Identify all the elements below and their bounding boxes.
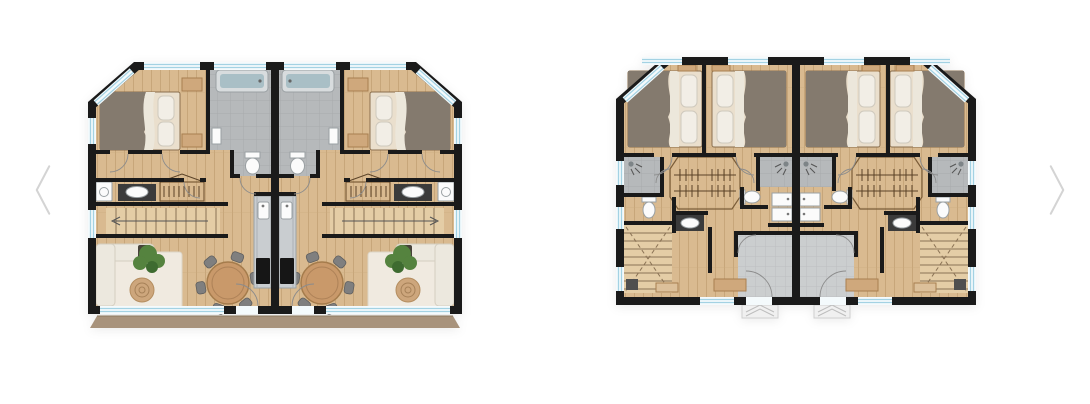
image-carousel: [0, 0, 1090, 404]
floor-plan-slide-1[interactable]: [88, 62, 462, 339]
chevron-right-icon: [1040, 160, 1074, 220]
chevron-left-icon: [26, 160, 60, 220]
unit-right-mirrored: [275, 62, 462, 315]
unit-right-mirrored: [796, 57, 976, 318]
floor-plan-bedroom-level: [616, 57, 976, 319]
floor-plan-slide-2[interactable]: [616, 57, 976, 324]
next-slide-button[interactable]: [1040, 160, 1074, 220]
floor-plan-living-level: [88, 62, 462, 334]
unit-left: [616, 57, 796, 318]
previous-slide-button[interactable]: [26, 160, 60, 220]
unit-left: [88, 62, 275, 315]
balcony: [90, 316, 460, 328]
